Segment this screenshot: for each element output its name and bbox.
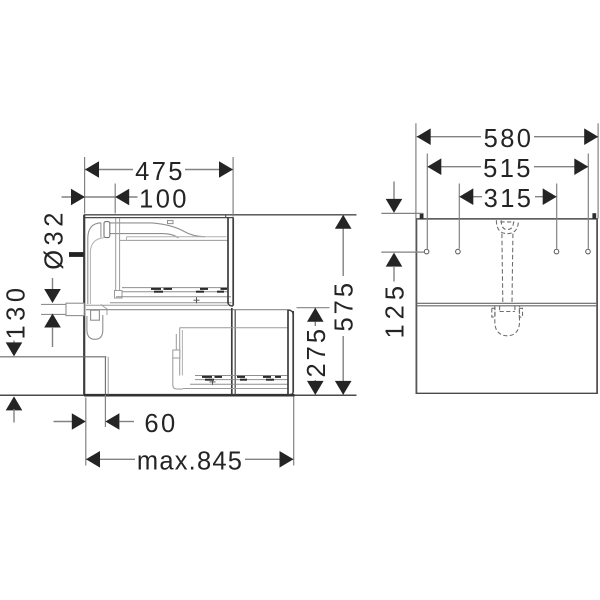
- svg-text:580: 580: [484, 125, 534, 153]
- svg-text:125: 125: [382, 281, 410, 339]
- svg-text:575: 575: [331, 280, 359, 332]
- svg-text:515: 515: [483, 155, 533, 183]
- svg-text:130: 130: [3, 283, 31, 339]
- svg-text:315: 315: [484, 185, 534, 213]
- svg-text:100: 100: [139, 186, 189, 214]
- svg-text:475: 475: [135, 158, 185, 186]
- svg-text:60: 60: [144, 410, 177, 438]
- svg-text:max.845: max.845: [137, 448, 243, 476]
- svg-text:Ø32: Ø32: [41, 208, 69, 270]
- svg-text:275: 275: [303, 326, 331, 378]
